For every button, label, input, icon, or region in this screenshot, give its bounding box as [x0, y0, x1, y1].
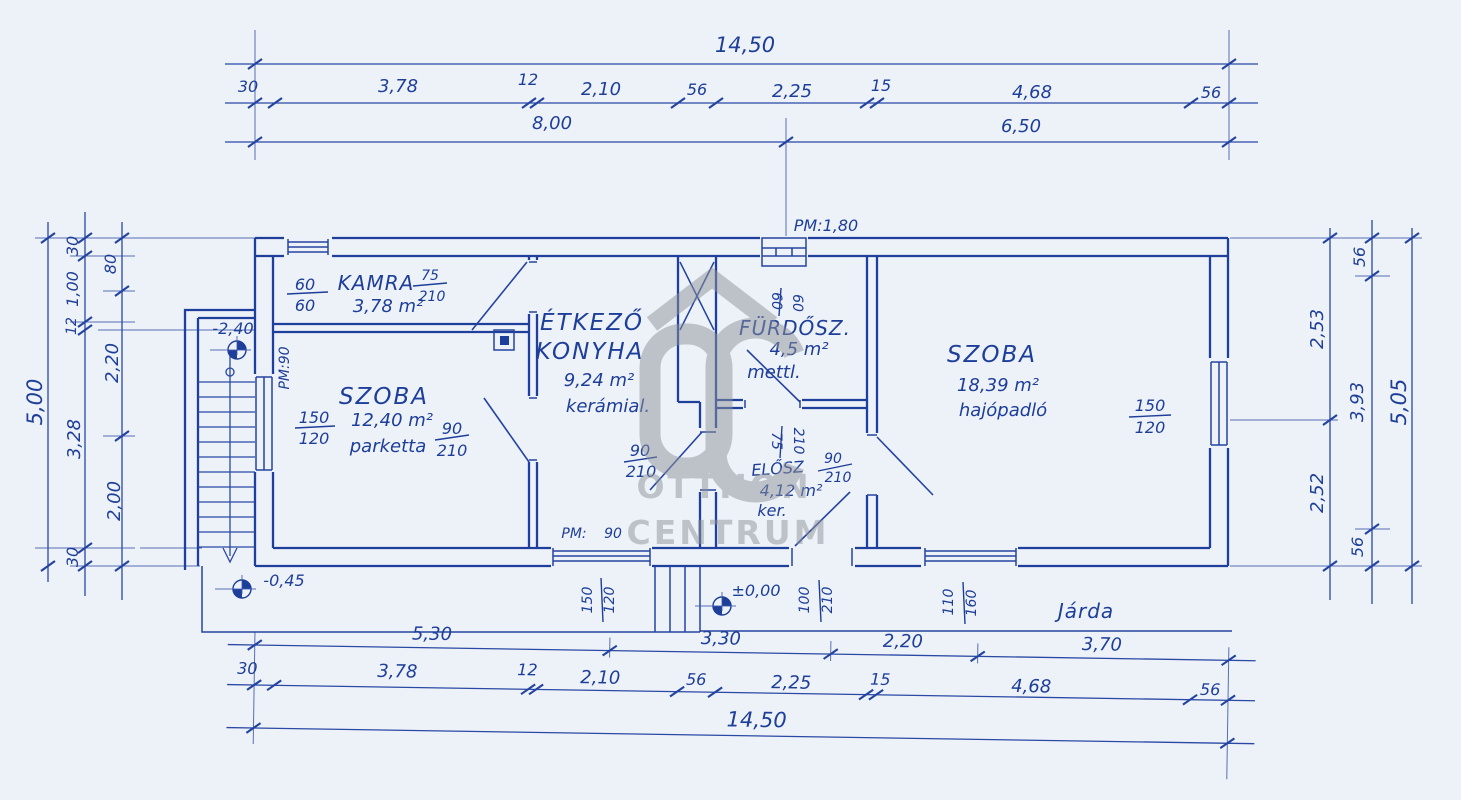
dim-label: 3,93 — [1347, 382, 1368, 422]
dim-label: 2,52 — [1307, 473, 1328, 513]
dim-label: 3,28 — [64, 419, 85, 459]
watermark-line1: OTTHON — [636, 467, 811, 506]
terrace-window-w: 110 — [941, 589, 957, 616]
dim-label: 2,00 — [104, 481, 125, 521]
dim-label: 56 — [1201, 83, 1221, 102]
konyha-name-2: KONYHA — [536, 339, 645, 365]
dim-label: 30 — [63, 236, 82, 256]
dim-label: 30 — [63, 547, 82, 567]
level-ground-label: ±0,00 — [731, 581, 780, 600]
dim-label: 2,10 — [580, 667, 620, 689]
dim-label: 2,20 — [883, 631, 923, 653]
dim-label: 3,78 — [378, 76, 418, 97]
szoba2-area: 18,39 m² — [957, 375, 1039, 396]
floorplan-drawing: 14,50 30 3,78 12 2,10 56 2,25 15 4,68 56… — [0, 0, 1461, 800]
level-terrace-label: -0,45 — [263, 571, 304, 590]
pm-kitchen-value: 90 — [604, 526, 622, 542]
szoba2-window-w: 150 — [1135, 396, 1166, 415]
pm-left-label: PM:90 — [277, 346, 293, 389]
dim-label: 2,53 — [1307, 309, 1328, 349]
kamra-window-h: 60 — [295, 296, 315, 315]
dim-label: 12 — [64, 317, 80, 335]
szoba1-window-h: 120 — [299, 429, 330, 448]
dim-label: 2,10 — [581, 79, 621, 100]
kamra-window-symbol — [288, 239, 328, 255]
szoba1-floor: parketta — [349, 436, 427, 457]
jarda-label: Járda — [1054, 599, 1114, 623]
dim-label: 5,30 — [412, 623, 452, 645]
dim-label: 30 — [237, 659, 258, 678]
szoba1-door-w: 90 — [442, 419, 462, 438]
kamra-window-w: 60 — [295, 275, 315, 294]
dim-total-left: 5,00 — [23, 379, 47, 426]
furdo-door-h: 210 — [790, 428, 806, 455]
dim-subtotal: 6,50 — [1001, 116, 1041, 137]
szoba1-window-w: 150 — [299, 408, 330, 427]
dim-label: 56 — [1350, 247, 1369, 267]
dim-label: 56 — [1348, 537, 1367, 557]
kitchen-window-h: 120 — [602, 587, 618, 614]
szoba2-floor: hajópadló — [959, 400, 1047, 421]
dim-label: 56 — [687, 80, 707, 99]
kamra-door-w: 75 — [421, 268, 439, 284]
dim-label: 2,25 — [771, 672, 811, 694]
dim-total-top: 14,50 — [715, 33, 775, 57]
dim-label: 12 — [517, 660, 538, 679]
kamra-area: 3,78 m² — [353, 296, 424, 317]
dim-total-bottom: 14,50 — [726, 707, 786, 732]
dim-label: 3,70 — [1082, 634, 1122, 656]
dim-label: 1,00 — [63, 271, 82, 307]
szoba1-door-h: 210 — [437, 441, 468, 460]
szoba2-window-h: 120 — [1135, 418, 1166, 437]
kitchen-window-w: 150 — [580, 587, 596, 614]
furdo-window-w: 60 — [768, 292, 784, 310]
szoba2-name: SZOBA — [947, 342, 1037, 368]
kamra-name: KAMRA — [338, 271, 415, 295]
furdo-floor: mettl. — [747, 362, 800, 383]
konyha-area: 9,24 m² — [564, 370, 635, 391]
entry-door-w: 100 — [797, 587, 813, 614]
dim-label: 56 — [686, 670, 707, 689]
konyha-name-1: ÉTKEZŐ — [540, 308, 644, 336]
szoba1-name: SZOBA — [339, 384, 429, 410]
dim-label: 56 — [1200, 680, 1221, 699]
terrace-window-h: 160 — [964, 590, 980, 617]
dim-label: 3,78 — [377, 661, 417, 683]
dim-label: 2,25 — [772, 81, 812, 102]
dim-label: 2,20 — [102, 343, 123, 383]
dim-label: 4,68 — [1012, 82, 1052, 103]
dim-subtotal: 8,00 — [532, 113, 572, 134]
pm-top-label: PM:1,80 — [794, 216, 858, 235]
konyha-floor: kerámial. — [566, 396, 650, 417]
dim-label: 30 — [238, 77, 258, 96]
szoba2-door-w: 90 — [824, 451, 842, 467]
furdo-window-h: 60 — [789, 294, 805, 312]
szoba1-area: 12,40 m² — [351, 410, 433, 431]
dim-label: 4,68 — [1011, 676, 1051, 698]
watermark-line2: CENTRUM — [627, 513, 830, 552]
dim-label: 15 — [871, 76, 891, 95]
dim-total-right: 5,05 — [1387, 379, 1411, 426]
level-cellar-label: -2,40 — [212, 319, 253, 338]
entry-door-h: 210 — [820, 587, 836, 614]
dim-label: 80 — [101, 254, 120, 274]
szoba2-door-h: 210 — [825, 470, 852, 486]
dim-label: 12 — [518, 70, 538, 89]
dim-label: 15 — [870, 670, 891, 689]
pm-kitchen-label: PM: — [561, 526, 586, 542]
room-kamra-labels: 60 60 KAMRA 75 210 3,78 m² — [287, 268, 447, 317]
